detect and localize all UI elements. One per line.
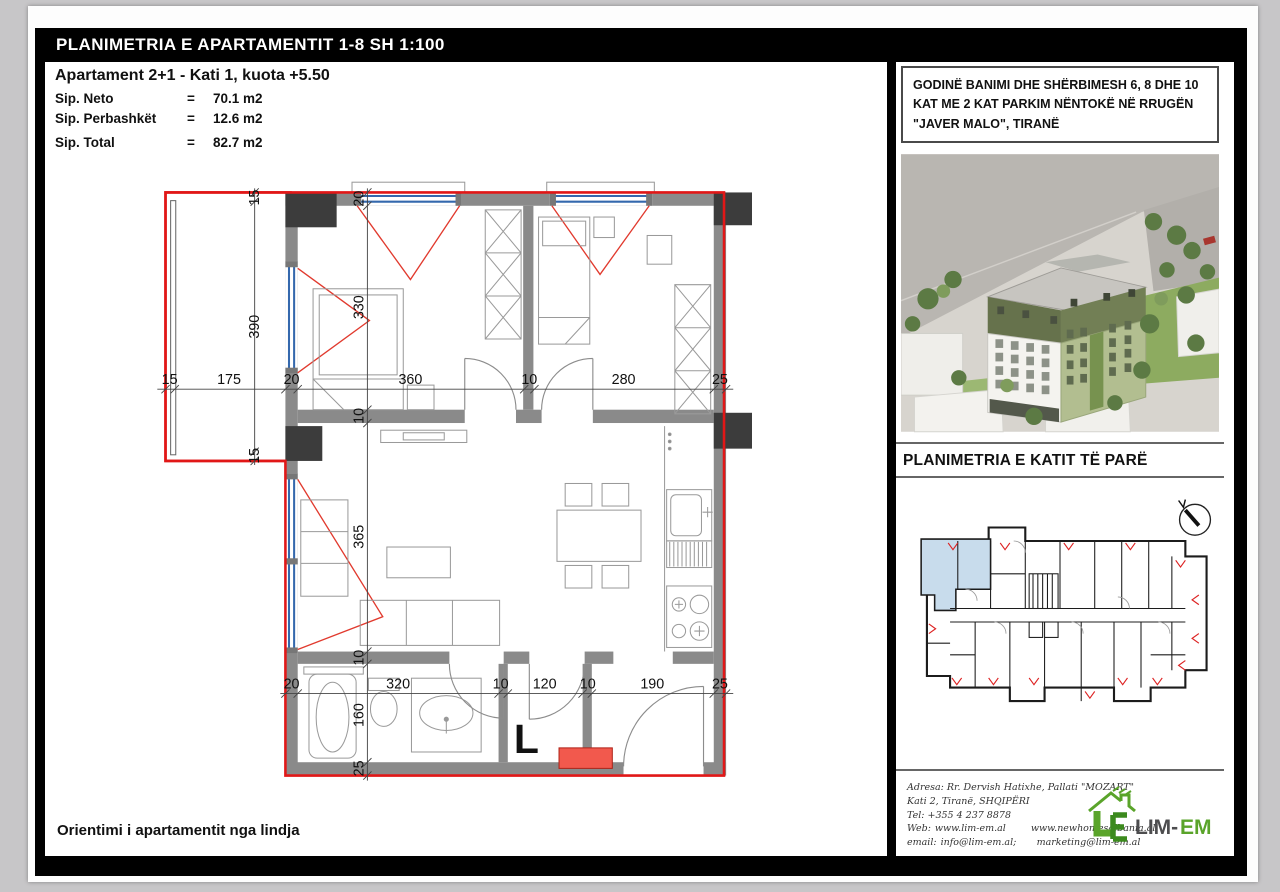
company-web-1: www.lim-em.al [935, 822, 1023, 836]
project-line: KAT ME 2 KAT PARKIM NËNTOKË NË RRUGËN [913, 95, 1207, 114]
company-logo: LIM- EM [1083, 785, 1217, 848]
separator-line [896, 476, 1224, 478]
vertical-divider [887, 62, 896, 856]
svg-text:120: 120 [533, 676, 557, 692]
svg-text:190: 190 [640, 676, 664, 692]
svg-text:15: 15 [247, 190, 263, 206]
sheet-title-bar: PLANIMETRIA E APARTAMENTIT 1-8 SH 1:100 [35, 28, 1247, 62]
logo-text-green: EM [1180, 816, 1212, 839]
apartment-floor-plan: 15 175 20 360 10 280 25 20 320 10 120 10… [157, 174, 752, 794]
svg-text:10: 10 [493, 676, 509, 692]
svg-text:10: 10 [521, 372, 537, 388]
north-compass-icon [1179, 500, 1211, 536]
svg-text:320: 320 [386, 676, 410, 692]
area-value: 12.6 m2 [213, 109, 475, 129]
svg-text:20: 20 [351, 191, 367, 207]
equals-sign: = [187, 109, 213, 129]
area-label: Sip. Perbashkët [55, 109, 187, 129]
logo-text-dark: LIM- [1135, 816, 1178, 839]
photo-background: PLANIMETRIA E APARTAMENTIT 1-8 SH 1:100 … [0, 0, 1280, 892]
svg-text:25: 25 [351, 760, 367, 776]
building-render-image [901, 149, 1219, 437]
project-description: GODINË BANIMI DHE SHËRBIMESH 6, 8 DHE 10… [901, 66, 1219, 143]
svg-text:365: 365 [351, 525, 367, 549]
balcony [166, 192, 291, 460]
svg-text:10: 10 [351, 650, 367, 666]
sheet-title: PLANIMETRIA E APARTAMENTIT 1-8 SH 1:100 [35, 35, 445, 55]
company-info: Adresa: Rr. Dervish Hatixhe, Pallati "MO… [901, 777, 1219, 855]
svg-text:15: 15 [162, 372, 178, 388]
company-email-1: info@lim-em.al; [941, 836, 1029, 850]
area-label: Sip. Neto [55, 89, 187, 109]
separator-line [896, 769, 1224, 771]
area-label: Sip. Total [55, 133, 187, 153]
svg-text:20: 20 [284, 372, 300, 388]
svg-text:360: 360 [398, 372, 422, 388]
svg-text:160: 160 [351, 703, 367, 727]
orientation-note: Orientimi i apartamentit nga lindja [57, 822, 300, 839]
right-panel: GODINË BANIMI DHE SHËRBIMESH 6, 8 DHE 10… [896, 62, 1224, 856]
entrance-door [624, 686, 704, 766]
apartment-info: Apartament 2+1 - Kati 1, kuota +5.50 Sip… [55, 67, 475, 153]
svg-text:10: 10 [580, 676, 596, 692]
key-plan-drawing [898, 480, 1222, 764]
area-row-perbashket: Sip. Perbashkët = 12.6 m2 [55, 109, 475, 129]
svg-text:330: 330 [351, 295, 367, 319]
svg-text:25: 25 [712, 676, 728, 692]
document-frame: PLANIMETRIA E APARTAMENTIT 1-8 SH 1:100 … [35, 28, 1247, 876]
svg-text:390: 390 [247, 315, 263, 339]
separator-line [896, 442, 1224, 444]
svg-text:15: 15 [247, 448, 263, 464]
area-row-total: Sip. Total = 82.7 m2 [55, 133, 475, 153]
project-line: "JAVER MALO", TIRANË [913, 115, 1207, 134]
project-line: GODINË BANIMI DHE SHËRBIMESH 6, 8 DHE 10 [913, 76, 1207, 95]
svg-text:280: 280 [612, 372, 636, 388]
svg-text:175: 175 [217, 372, 241, 388]
area-value: 82.7 m2 [213, 133, 475, 153]
main-plan-area: Apartament 2+1 - Kati 1, kuota +5.50 Sip… [45, 62, 887, 856]
apartment-heading: Apartament 2+1 - Kati 1, kuota +5.50 [55, 67, 475, 85]
equals-sign: = [187, 133, 213, 153]
svg-text:10: 10 [351, 408, 367, 424]
plan-sheet: PLANIMETRIA E APARTAMENTIT 1-8 SH 1:100 … [28, 6, 1258, 882]
window-swing-marks [298, 206, 650, 650]
equals-sign: = [187, 89, 213, 109]
lim-em-logo-icon: LIM- EM [1083, 785, 1217, 843]
svg-text:25: 25 [712, 372, 728, 388]
svg-text:20: 20 [284, 676, 300, 692]
area-value: 70.1 m2 [213, 89, 475, 109]
entrance-mat [559, 748, 612, 768]
key-plan-title: PLANIMETRIA E KATIT TË PARË [903, 452, 1224, 470]
area-row-neto: Sip. Neto = 70.1 m2 [55, 89, 475, 109]
elevator-label: L [514, 716, 539, 762]
